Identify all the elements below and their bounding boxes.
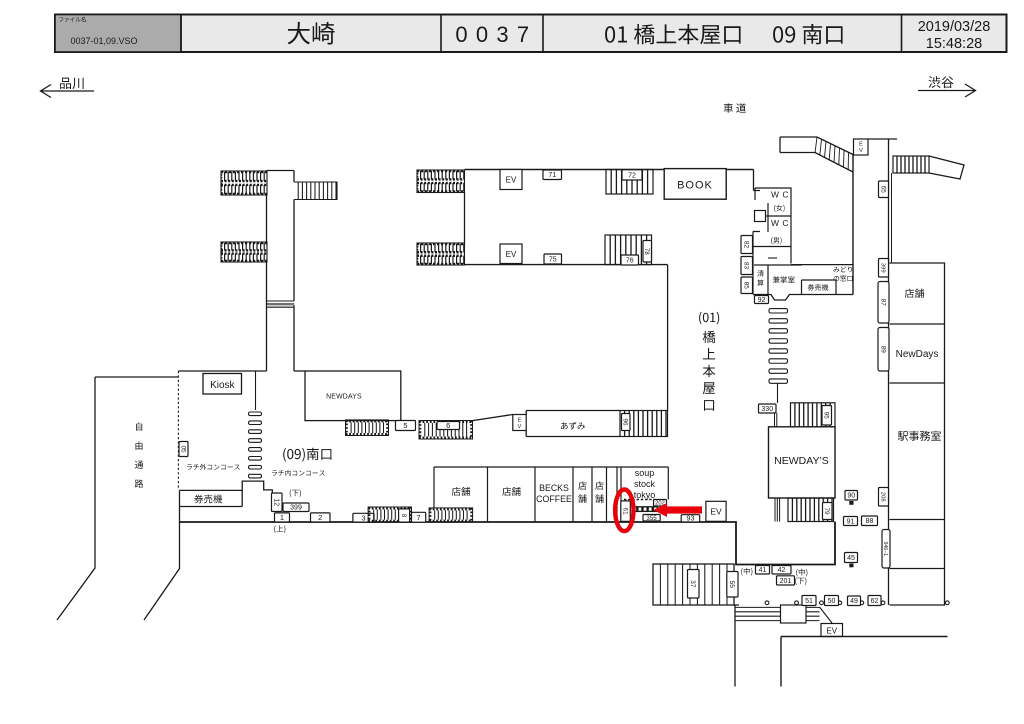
svg-text:7: 7 <box>417 513 421 522</box>
svg-text:W C: W C <box>771 190 789 200</box>
svg-text:45: 45 <box>847 555 855 562</box>
svg-text:65: 65 <box>879 186 886 194</box>
svg-text:stock: stock <box>634 479 656 489</box>
svg-text:946−1: 946−1 <box>882 541 888 556</box>
svg-text:0: 0 <box>476 22 488 47</box>
svg-text:5: 5 <box>403 421 407 430</box>
svg-text:89: 89 <box>879 346 886 354</box>
svg-text:15:48:28: 15:48:28 <box>926 36 982 52</box>
svg-text:NewDays: NewDays <box>896 349 939 360</box>
svg-text:1: 1 <box>280 513 284 522</box>
svg-text:208: 208 <box>880 492 886 502</box>
svg-text:Kiosk: Kiosk <box>210 380 235 391</box>
svg-text:05: 05 <box>179 445 186 453</box>
svg-text:71: 71 <box>548 172 556 179</box>
svg-text:62: 62 <box>871 598 879 605</box>
svg-text:72: 72 <box>628 172 636 179</box>
svg-text:61: 61 <box>621 508 628 516</box>
svg-text:399: 399 <box>290 505 302 512</box>
svg-text:50: 50 <box>828 598 836 605</box>
svg-text:tokyo: tokyo <box>634 490 656 500</box>
svg-text:399: 399 <box>880 263 886 273</box>
svg-text:BECKS: BECKS <box>539 483 569 493</box>
svg-text:85: 85 <box>743 282 750 290</box>
svg-text:2: 2 <box>318 513 322 522</box>
svg-text:42: 42 <box>778 567 786 574</box>
svg-text:95: 95 <box>823 412 830 420</box>
svg-text:7: 7 <box>517 22 529 47</box>
svg-text:83: 83 <box>743 262 750 270</box>
svg-text:E: E <box>859 142 863 148</box>
svg-text:82: 82 <box>743 241 750 249</box>
svg-text:55: 55 <box>728 581 735 589</box>
svg-text:EV: EV <box>506 176 517 185</box>
svg-text:COFFEE: COFFEE <box>536 494 572 504</box>
svg-text:EV: EV <box>710 507 722 517</box>
svg-text:201: 201 <box>780 578 792 585</box>
svg-text:79: 79 <box>823 507 830 515</box>
svg-text:0037-01,09.VSO: 0037-01,09.VSO <box>70 36 137 46</box>
svg-text:3: 3 <box>496 22 508 47</box>
svg-text:6: 6 <box>446 421 450 430</box>
svg-text:87: 87 <box>879 299 886 307</box>
svg-text:88: 88 <box>866 518 874 525</box>
svg-text:93: 93 <box>687 516 695 523</box>
svg-text:49: 49 <box>850 598 858 605</box>
svg-text:EV: EV <box>826 627 837 636</box>
svg-text:75: 75 <box>549 256 557 263</box>
svg-text:92: 92 <box>758 297 766 304</box>
svg-text:12: 12 <box>272 498 279 506</box>
svg-text:41: 41 <box>759 567 767 574</box>
svg-text:E: E <box>518 418 522 424</box>
svg-text:330: 330 <box>761 406 773 413</box>
svg-text:NEWDAYS: NEWDAYS <box>326 394 362 401</box>
svg-text:soup: soup <box>635 468 655 478</box>
svg-text:91: 91 <box>847 518 855 525</box>
svg-text:51: 51 <box>805 598 813 605</box>
svg-text:V: V <box>859 148 863 154</box>
svg-text:2019/03/28: 2019/03/28 <box>918 19 991 35</box>
svg-text:96: 96 <box>622 418 629 426</box>
svg-text:355: 355 <box>646 515 657 522</box>
svg-text:BOOK: BOOK <box>677 180 713 192</box>
svg-text:EV: EV <box>506 250 517 259</box>
svg-text:W C: W C <box>771 218 789 228</box>
svg-text:78: 78 <box>643 248 650 256</box>
svg-text:3: 3 <box>361 513 365 522</box>
svg-text:0: 0 <box>455 22 467 47</box>
svg-text:V: V <box>518 424 522 430</box>
svg-text:NEWDAY’S: NEWDAY’S <box>774 455 829 467</box>
svg-text:90: 90 <box>847 493 855 500</box>
svg-text:76: 76 <box>626 257 634 264</box>
svg-text:37: 37 <box>689 580 696 588</box>
